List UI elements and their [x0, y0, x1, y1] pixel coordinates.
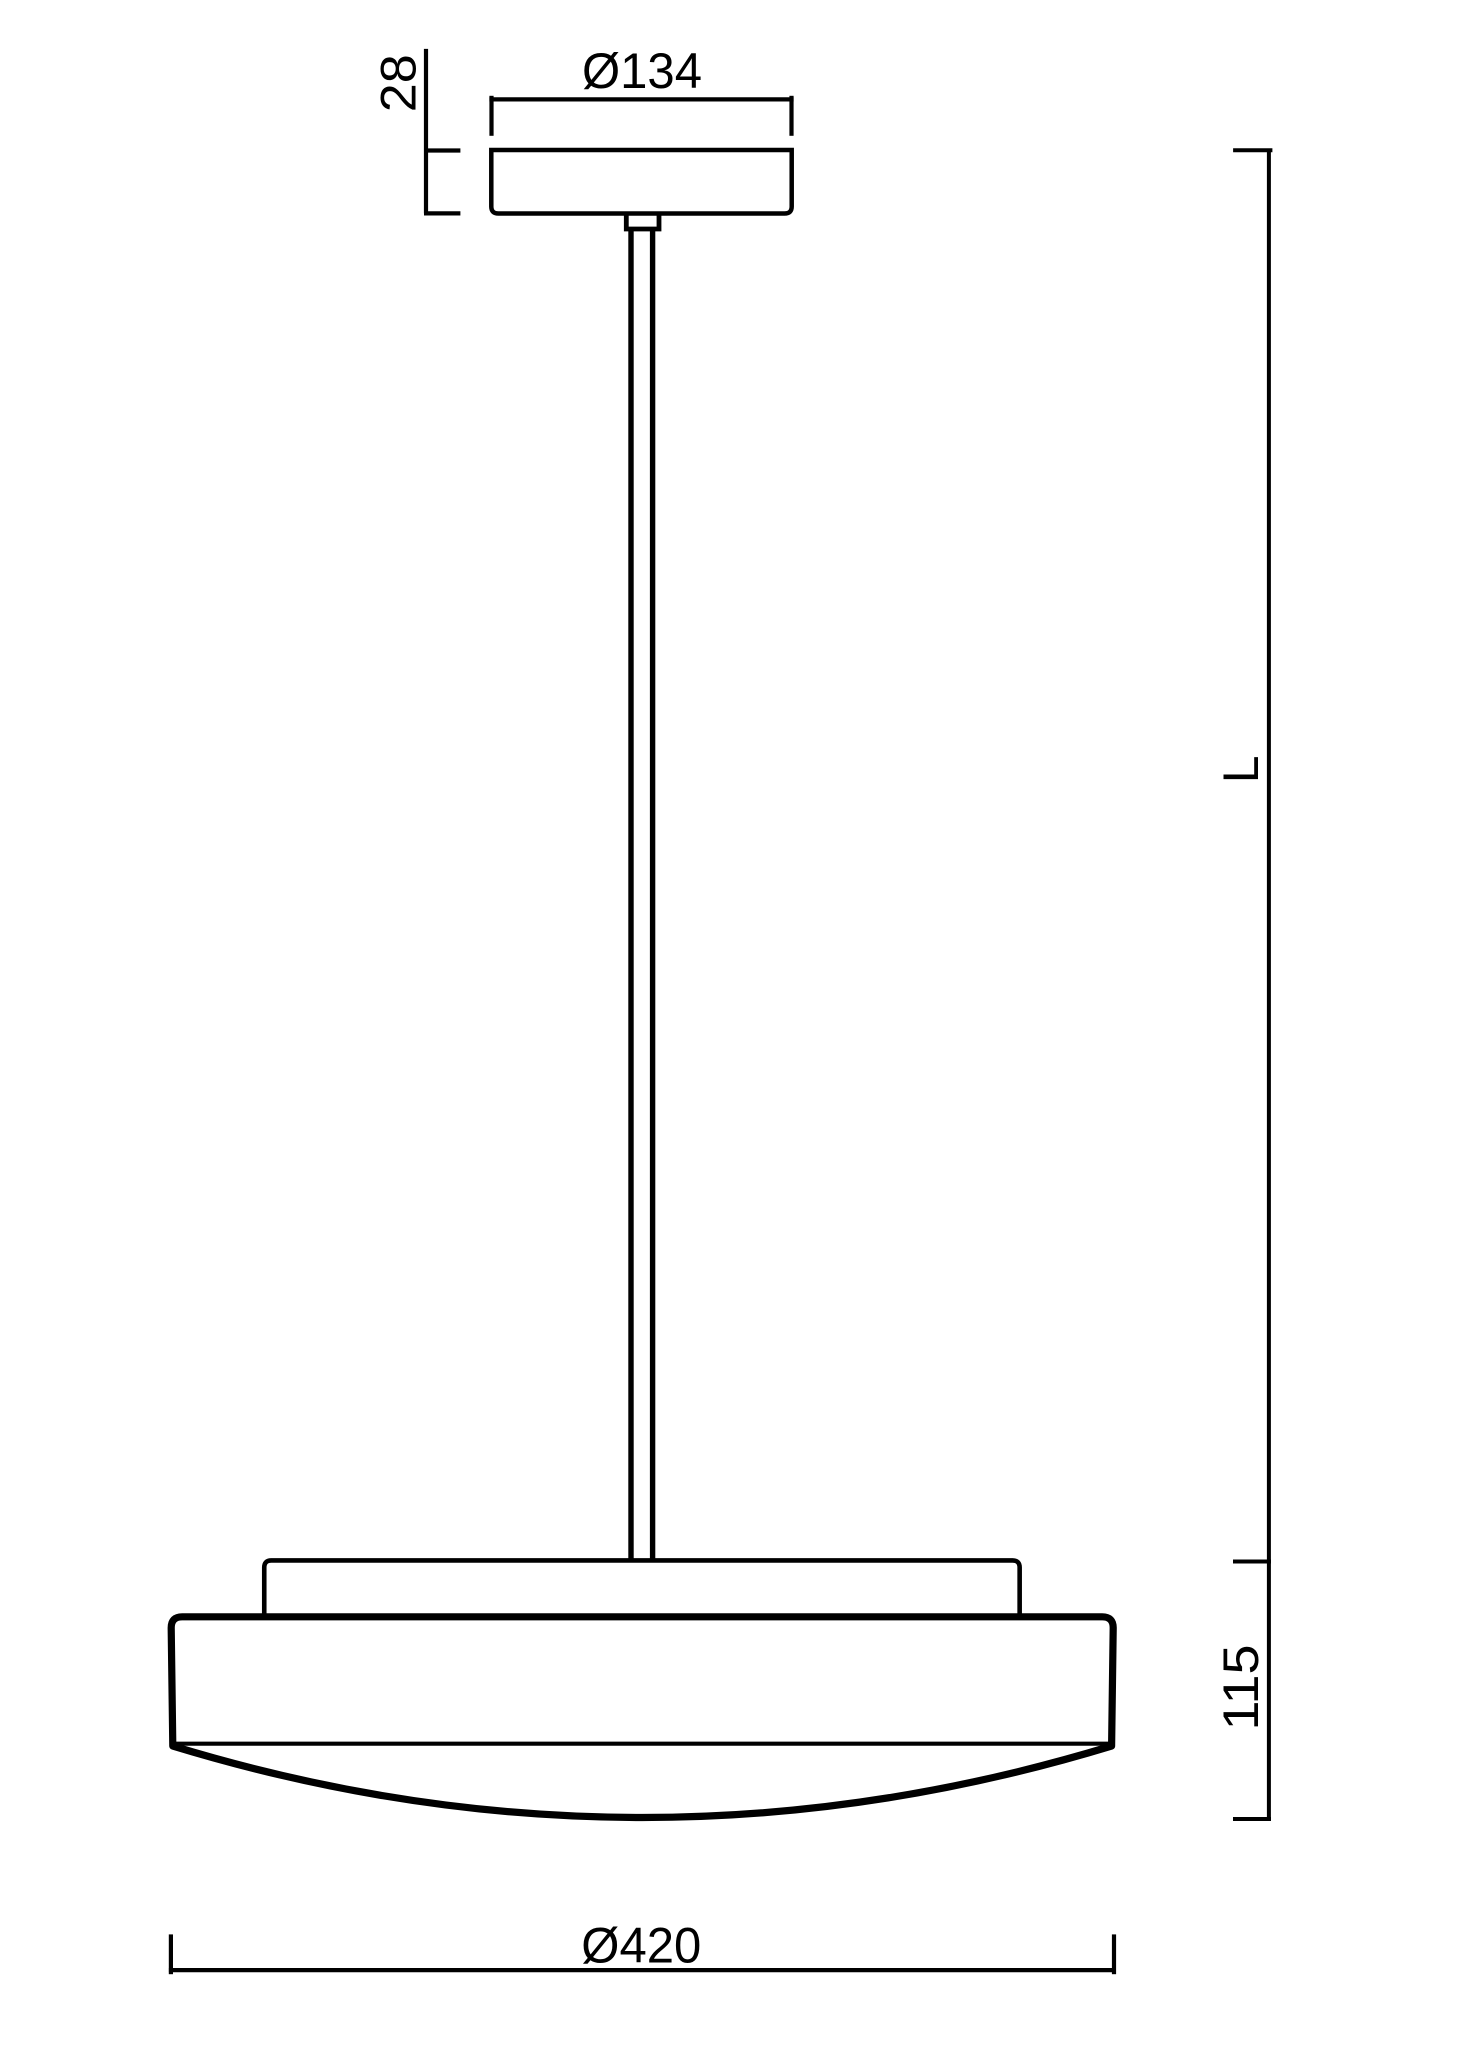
svg-text:Ø134: Ø134 — [582, 43, 702, 99]
svg-text:115: 115 — [1213, 1645, 1269, 1731]
svg-text:28: 28 — [371, 54, 427, 112]
svg-text:L: L — [1213, 755, 1269, 783]
svg-text:Ø420: Ø420 — [581, 1917, 701, 1973]
